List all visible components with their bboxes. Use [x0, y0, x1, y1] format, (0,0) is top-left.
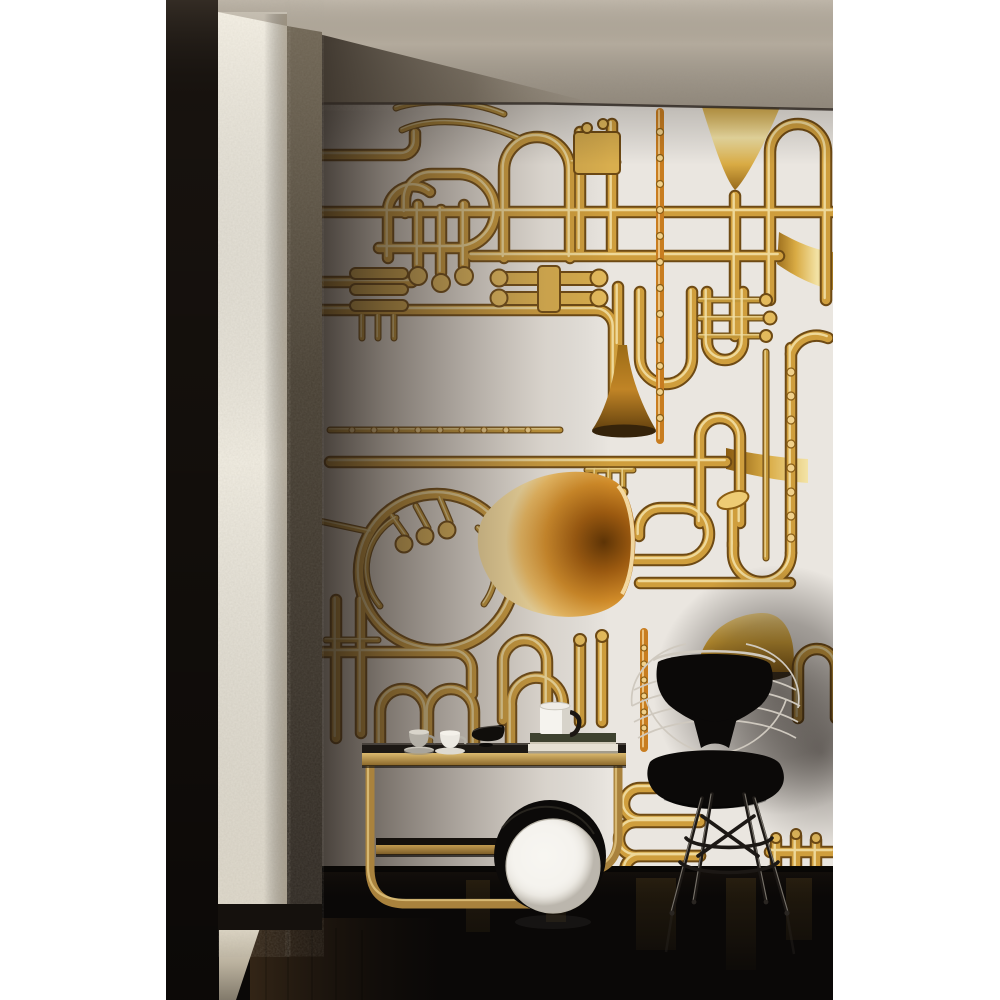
plaster-column: [218, 12, 322, 930]
column-base-shadow: [218, 904, 322, 930]
chair-foot: [692, 900, 697, 905]
door-dark-edge: [166, 0, 218, 1000]
floor-brown-patch: [250, 918, 446, 1000]
chair-foot: [669, 910, 674, 915]
page: [0, 0, 1000, 1000]
disc-reflection: [515, 915, 591, 929]
column-side-texture: [287, 26, 322, 912]
chair-foot: [764, 900, 769, 905]
dark-edge-shading: [166, 0, 218, 1000]
interior-photo: [166, 0, 833, 1000]
chair-foot: [784, 910, 789, 915]
column-edge-shading: [264, 14, 287, 912]
